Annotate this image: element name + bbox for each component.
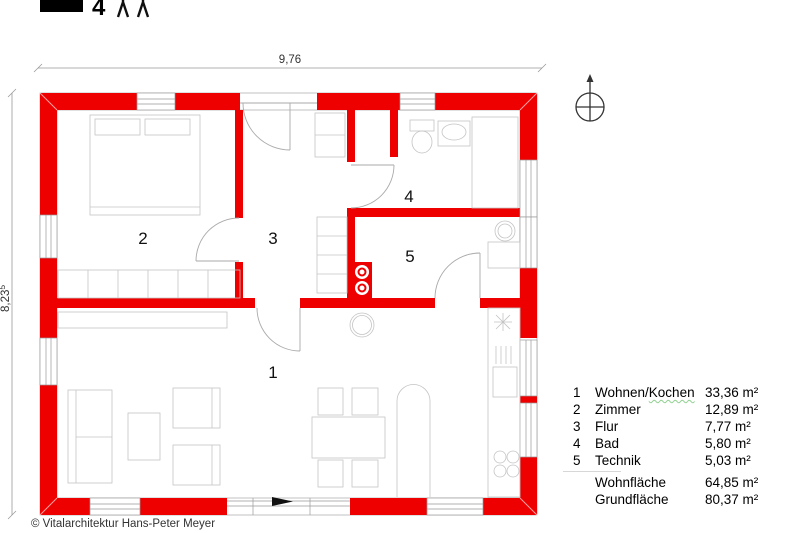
door-room2 [196, 218, 239, 261]
boiler [488, 221, 520, 268]
dimension-height-label: 8,235 [0, 285, 12, 312]
chair [352, 388, 378, 415]
chimney [350, 313, 374, 337]
sink [438, 121, 470, 146]
wall-technik-living [480, 298, 520, 308]
window [427, 498, 483, 515]
bed [90, 115, 200, 215]
wall-top [175, 93, 240, 110]
wardrobe [58, 270, 240, 298]
dimension-width-label: 9,76 [279, 54, 301, 66]
room-label-2: 2 [138, 229, 147, 248]
armchair [173, 388, 220, 428]
window [400, 93, 435, 110]
chair [318, 460, 343, 487]
door-bath [351, 165, 394, 208]
armchair [173, 445, 220, 485]
hall-closet [315, 113, 347, 293]
wall-left [40, 258, 57, 338]
north-compass-icon [576, 74, 604, 121]
copyright-notice: © Vitalarchitektur Hans-Peter Meyer [31, 518, 215, 530]
wall-left [40, 93, 57, 215]
entrance-arrow-icon [272, 497, 293, 506]
wall-bottom [40, 498, 90, 515]
wall-right [520, 268, 537, 338]
kitchen-counter [488, 308, 520, 497]
door-technik [435, 253, 480, 298]
legend-total-row: Grundfläche 80,37 m² [573, 491, 788, 508]
wall-hall-bath [347, 110, 355, 162]
legend-total-row: Wohnfläche 64,85 m² [573, 474, 788, 491]
wall-right [520, 396, 537, 403]
room-label-5: 5 [405, 247, 414, 266]
shower [472, 117, 518, 208]
room-label-1: 1 [268, 363, 277, 382]
sideboard [58, 312, 227, 328]
wall-top [317, 93, 400, 110]
legend-row: 1 Wohnen/Kochen 33,36 m² [573, 384, 788, 401]
chair [352, 460, 378, 487]
legend-row: 4 Bad 5,80 m² [573, 435, 788, 452]
wall-room2-hall [235, 110, 243, 218]
window [90, 498, 140, 515]
window [40, 215, 57, 258]
legend-divider [563, 471, 621, 472]
window [520, 340, 537, 396]
window [520, 403, 537, 457]
window [520, 160, 537, 217]
person-icon [118, 0, 128, 17]
window [137, 93, 175, 110]
wall-bath-technik [347, 208, 520, 217]
wall-room2-living [57, 298, 255, 308]
wall-left [40, 385, 57, 515]
room-label-3: 3 [268, 229, 277, 248]
wall-bottom [140, 498, 227, 515]
sofa [68, 390, 112, 483]
legend-row: 5 Technik 5,03 m² [573, 452, 788, 469]
coffee-table [128, 413, 160, 460]
person-icon [138, 0, 148, 17]
chair [318, 388, 343, 415]
floorplan-page: 4 [0, 0, 800, 533]
dining-table [312, 417, 385, 458]
room-label-4: 4 [404, 187, 413, 206]
area-legend: 1 Wohnen/Kochen 33,36 m² 2 Zimmer 12,89 … [573, 384, 788, 508]
legend-row: 3 Flur 7,77 m² [573, 418, 788, 435]
wall-hall-living [300, 298, 435, 308]
window [40, 338, 57, 385]
arched-counter [397, 385, 430, 497]
wall-right [520, 93, 537, 160]
door-hall-living [257, 308, 300, 351]
spellcheck-marked-word: Kochen [649, 385, 695, 400]
toilet [410, 120, 434, 153]
window [520, 217, 537, 268]
wall-bottom [350, 498, 427, 515]
wall-room2-hall [235, 262, 243, 298]
legend-row: 2 Zimmer 12,89 m² [573, 401, 788, 418]
wall-bath-stub [390, 110, 398, 157]
